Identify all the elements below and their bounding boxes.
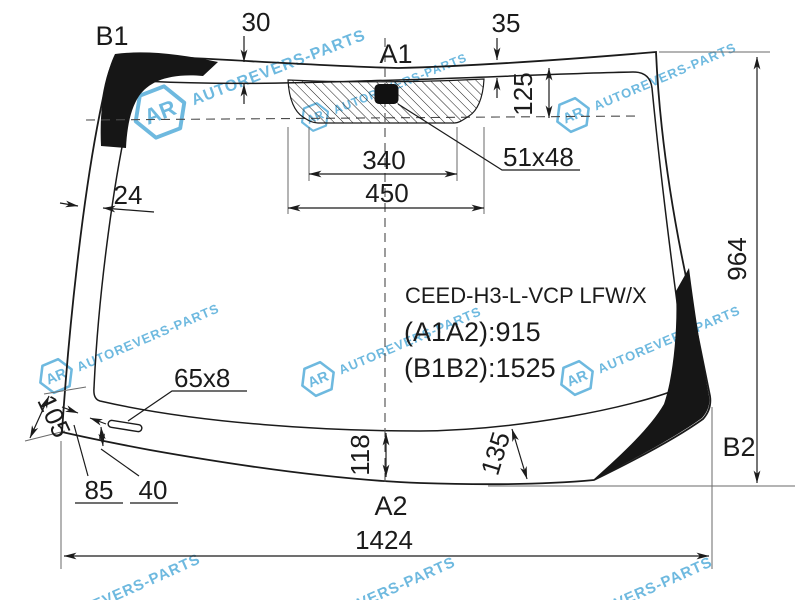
dim-frit-height: 125 [508,72,538,115]
watermark-bottom-center: AUTOREVERS-PARTS [292,554,458,600]
watermark-logo: AR [141,95,180,130]
dim-bottom-width: 1424 [355,525,413,555]
dim-bottom-frit-right: 135 [475,428,516,478]
diagram-canvas: AR AUTOREVERS-PARTS AR AUTOREVERS-PARTS … [0,0,800,600]
dim-slot-offset: 85 [85,475,114,505]
part-code: CEED-H3-L-VCP LFW/X [405,283,647,308]
dim-top-band-right: 35 [492,8,521,38]
dim-bottom-frit-center: 118 [345,434,375,475]
watermark-logo: AR [565,367,591,390]
dist-a1a2: (A1A2):915 [404,317,541,347]
watermark-text: AUTOREVERS-PARTS [595,303,742,377]
camera-window [375,84,399,104]
label-b2: B2 [722,432,755,462]
dim-camera-band-340: 340 [362,145,405,175]
watermark-text: AUTOREVERS-PARTS [549,554,715,600]
dim-side-band: 24 [114,180,143,210]
dist-b1b2: (B1B2):1525 [404,353,556,383]
dim-camera-band-450: 450 [365,178,408,208]
watermark-bottom-right: AUTOREVERS-PARTS [549,554,715,600]
watermark-mid-center: AR AUTOREVERS-PARTS [297,297,487,400]
label-a1: A1 [379,39,412,69]
dim-camera-size: 51x48 [503,142,574,172]
label-b1: B1 [95,21,128,51]
dim-top-band-left: 30 [242,7,271,37]
watermark-logo: AR [306,368,332,391]
slot-65x8 [108,420,143,432]
watermark-top-right: AR AUTOREVERS-PARTS [552,33,742,136]
watermark-text: AUTOREVERS-PARTS [292,554,458,600]
dim-slot-size: 65x8 [174,363,230,393]
watermark-bottom-left: AUTOREVERS-PARTS [37,551,203,600]
dim-height-right: 964 [722,237,752,280]
label-a2: A2 [374,491,407,521]
dim-slot-inset: 40 [139,475,168,505]
watermark-text: AUTOREVERS-PARTS [37,551,203,600]
windshield-technical-drawing: AR AUTOREVERS-PARTS AR AUTOREVERS-PARTS … [0,0,800,600]
watermark-mid-right: AR AUTOREVERS-PARTS [556,296,746,399]
watermark-text: AUTOREVERS-PARTS [591,40,738,114]
